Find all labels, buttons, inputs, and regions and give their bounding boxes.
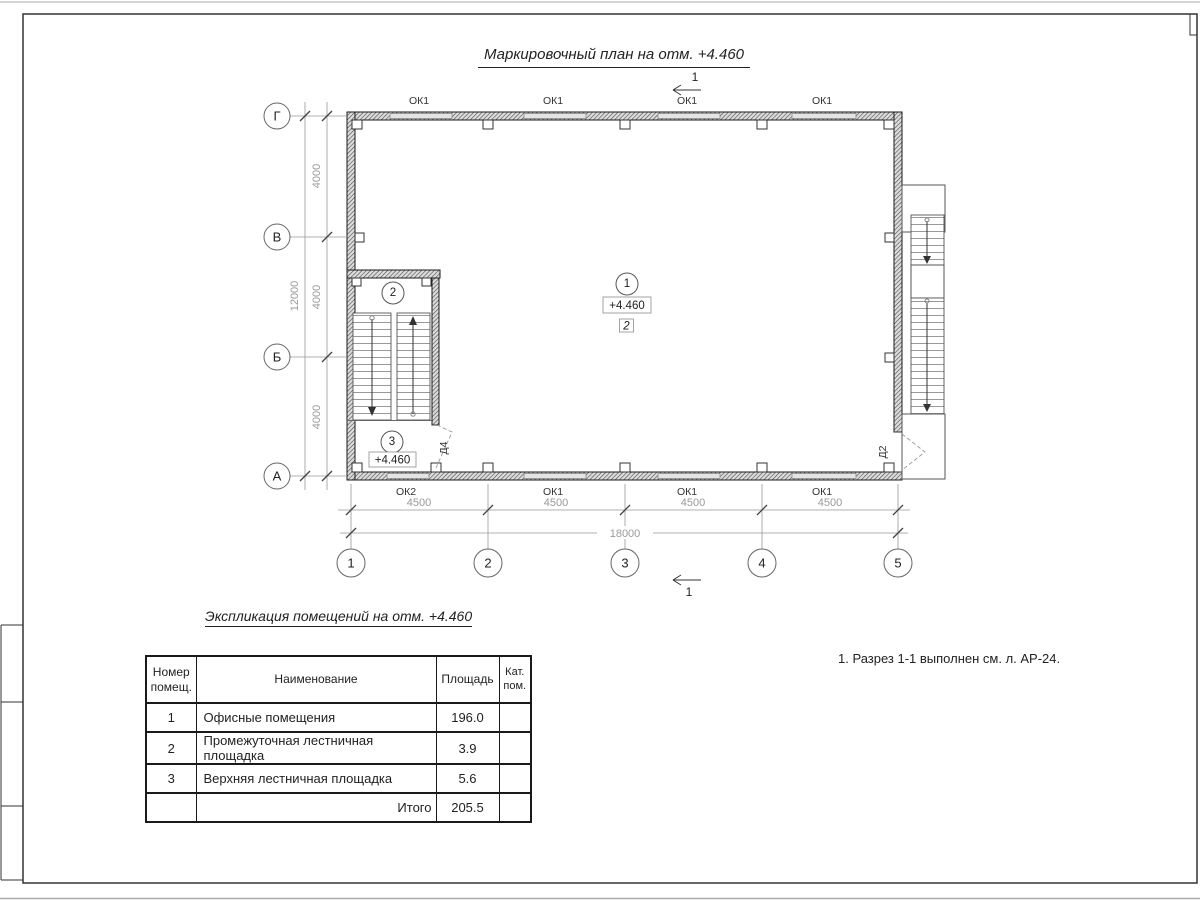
total-area-value: 205.5 [436, 793, 499, 822]
window-labels: ОК1 ОК1 ОК1 ОК1 ОК2 ОК1 ОК1 ОК1 [396, 95, 832, 498]
room-number-cell: 2 [146, 732, 196, 764]
axis-row-v: В [273, 230, 282, 245]
table-row: 1 Офисные помещения 196.0 [146, 703, 531, 732]
dim-4000-2: 4000 [311, 285, 323, 309]
room-area-cell: 5.6 [436, 764, 499, 793]
room-1-elevation: +4.460 [609, 300, 645, 312]
axis-row-g: Г [273, 109, 280, 124]
dim-12000: 12000 [289, 281, 301, 312]
room-3-elevation: +4.460 [375, 455, 411, 467]
schedule-title: Экспликация помещений на отм. +4.460 [205, 608, 472, 627]
dim-4000-3: 4000 [311, 405, 323, 429]
axis-col-1: 1 [347, 556, 354, 571]
window-openings [387, 114, 856, 479]
window-label-top-2: ОК1 [543, 95, 563, 107]
dim-18000: 18000 [610, 528, 641, 540]
schedule-total-row: Итого 205.5 [146, 793, 531, 822]
section-mark-bottom: 1 [673, 575, 701, 599]
axis-col-5: 5 [894, 556, 901, 571]
window-label-top-1: ОК1 [409, 95, 429, 107]
exterior-walls [347, 112, 902, 480]
dim-4500-2: 4500 [544, 497, 568, 509]
col-header-name: Наименование [196, 656, 436, 703]
axis-col-3: 3 [621, 556, 628, 571]
dim-4500-1: 4500 [407, 497, 431, 509]
room-number-cell: 3 [146, 764, 196, 793]
external-stair [902, 185, 945, 479]
room-3-number: 3 [389, 436, 395, 448]
room-2-number: 2 [390, 287, 396, 299]
dim-4500-4: 4500 [818, 497, 842, 509]
grid-axes-left: Г В Б А 4000 4000 4000 12000 [264, 102, 347, 490]
section-number-top: 1 [692, 70, 699, 84]
room-schedule-table: Номер помещ. Наименование Площадь Кат. п… [145, 655, 532, 823]
empty-cell [499, 793, 531, 822]
window-label-top-4: ОК1 [812, 95, 832, 107]
room-category-cell [499, 732, 531, 764]
axis-row-b: Б [273, 350, 282, 365]
dim-4000-1: 4000 [311, 164, 323, 188]
window-label-bottom-3: ОК1 [677, 486, 697, 498]
window-label-bottom-1: ОК2 [396, 486, 416, 498]
note-text: 1. Разрез 1-1 выполнен см. л. АР-24. [838, 651, 1060, 666]
drawing-sheet: Г В Б А 4000 4000 4000 12000 4500 4500 4… [0, 0, 1200, 900]
room-area-cell: 196.0 [436, 703, 499, 732]
door-labels: Д4 Д2 [438, 441, 889, 458]
door-label-d2: Д2 [877, 445, 889, 458]
room-name-cell: Верхняя лестничная площадка [196, 764, 436, 793]
axis-row-a: А [273, 469, 282, 484]
col-header-number: Номер помещ. [146, 656, 196, 703]
room-category-cell [499, 764, 531, 793]
table-row: 3 Верхняя лестничная площадка 5.6 [146, 764, 531, 793]
col-header-area: Площадь [436, 656, 499, 703]
room-name-cell: Офисные помещения [196, 703, 436, 732]
plan-title: Маркировочный план на отм. +4.460 [478, 46, 750, 68]
door-label-d4: Д4 [438, 441, 450, 454]
schedule-table: Номер помещ. Наименование Площадь Кат. п… [145, 655, 532, 823]
axis-col-2: 2 [484, 556, 491, 571]
room-category-cell [499, 703, 531, 732]
internal-stair [347, 313, 432, 421]
section-mark-top: 1 [673, 70, 701, 95]
room-name-cell: Промежуточная лестничная площадка [196, 732, 436, 764]
room-1-finish-mark: 2 [622, 321, 630, 333]
room-number-cell: 1 [146, 703, 196, 732]
section-number-bottom: 1 [686, 585, 693, 599]
window-label-bottom-4: ОК1 [812, 486, 832, 498]
total-label: Итого [196, 793, 436, 822]
schedule-header-row: Номер помещ. Наименование Площадь Кат. п… [146, 656, 531, 703]
window-label-bottom-2: ОК1 [543, 486, 563, 498]
col-header-category: Кат. пом. [499, 656, 531, 703]
axis-col-4: 4 [758, 556, 765, 571]
room-area-cell: 3.9 [436, 732, 499, 764]
room-1-number: 1 [624, 278, 630, 290]
table-row: 2 Промежуточная лестничная площадка 3.9 [146, 732, 531, 764]
window-label-top-3: ОК1 [677, 95, 697, 107]
empty-cell [146, 793, 196, 822]
dim-4500-3: 4500 [681, 497, 705, 509]
